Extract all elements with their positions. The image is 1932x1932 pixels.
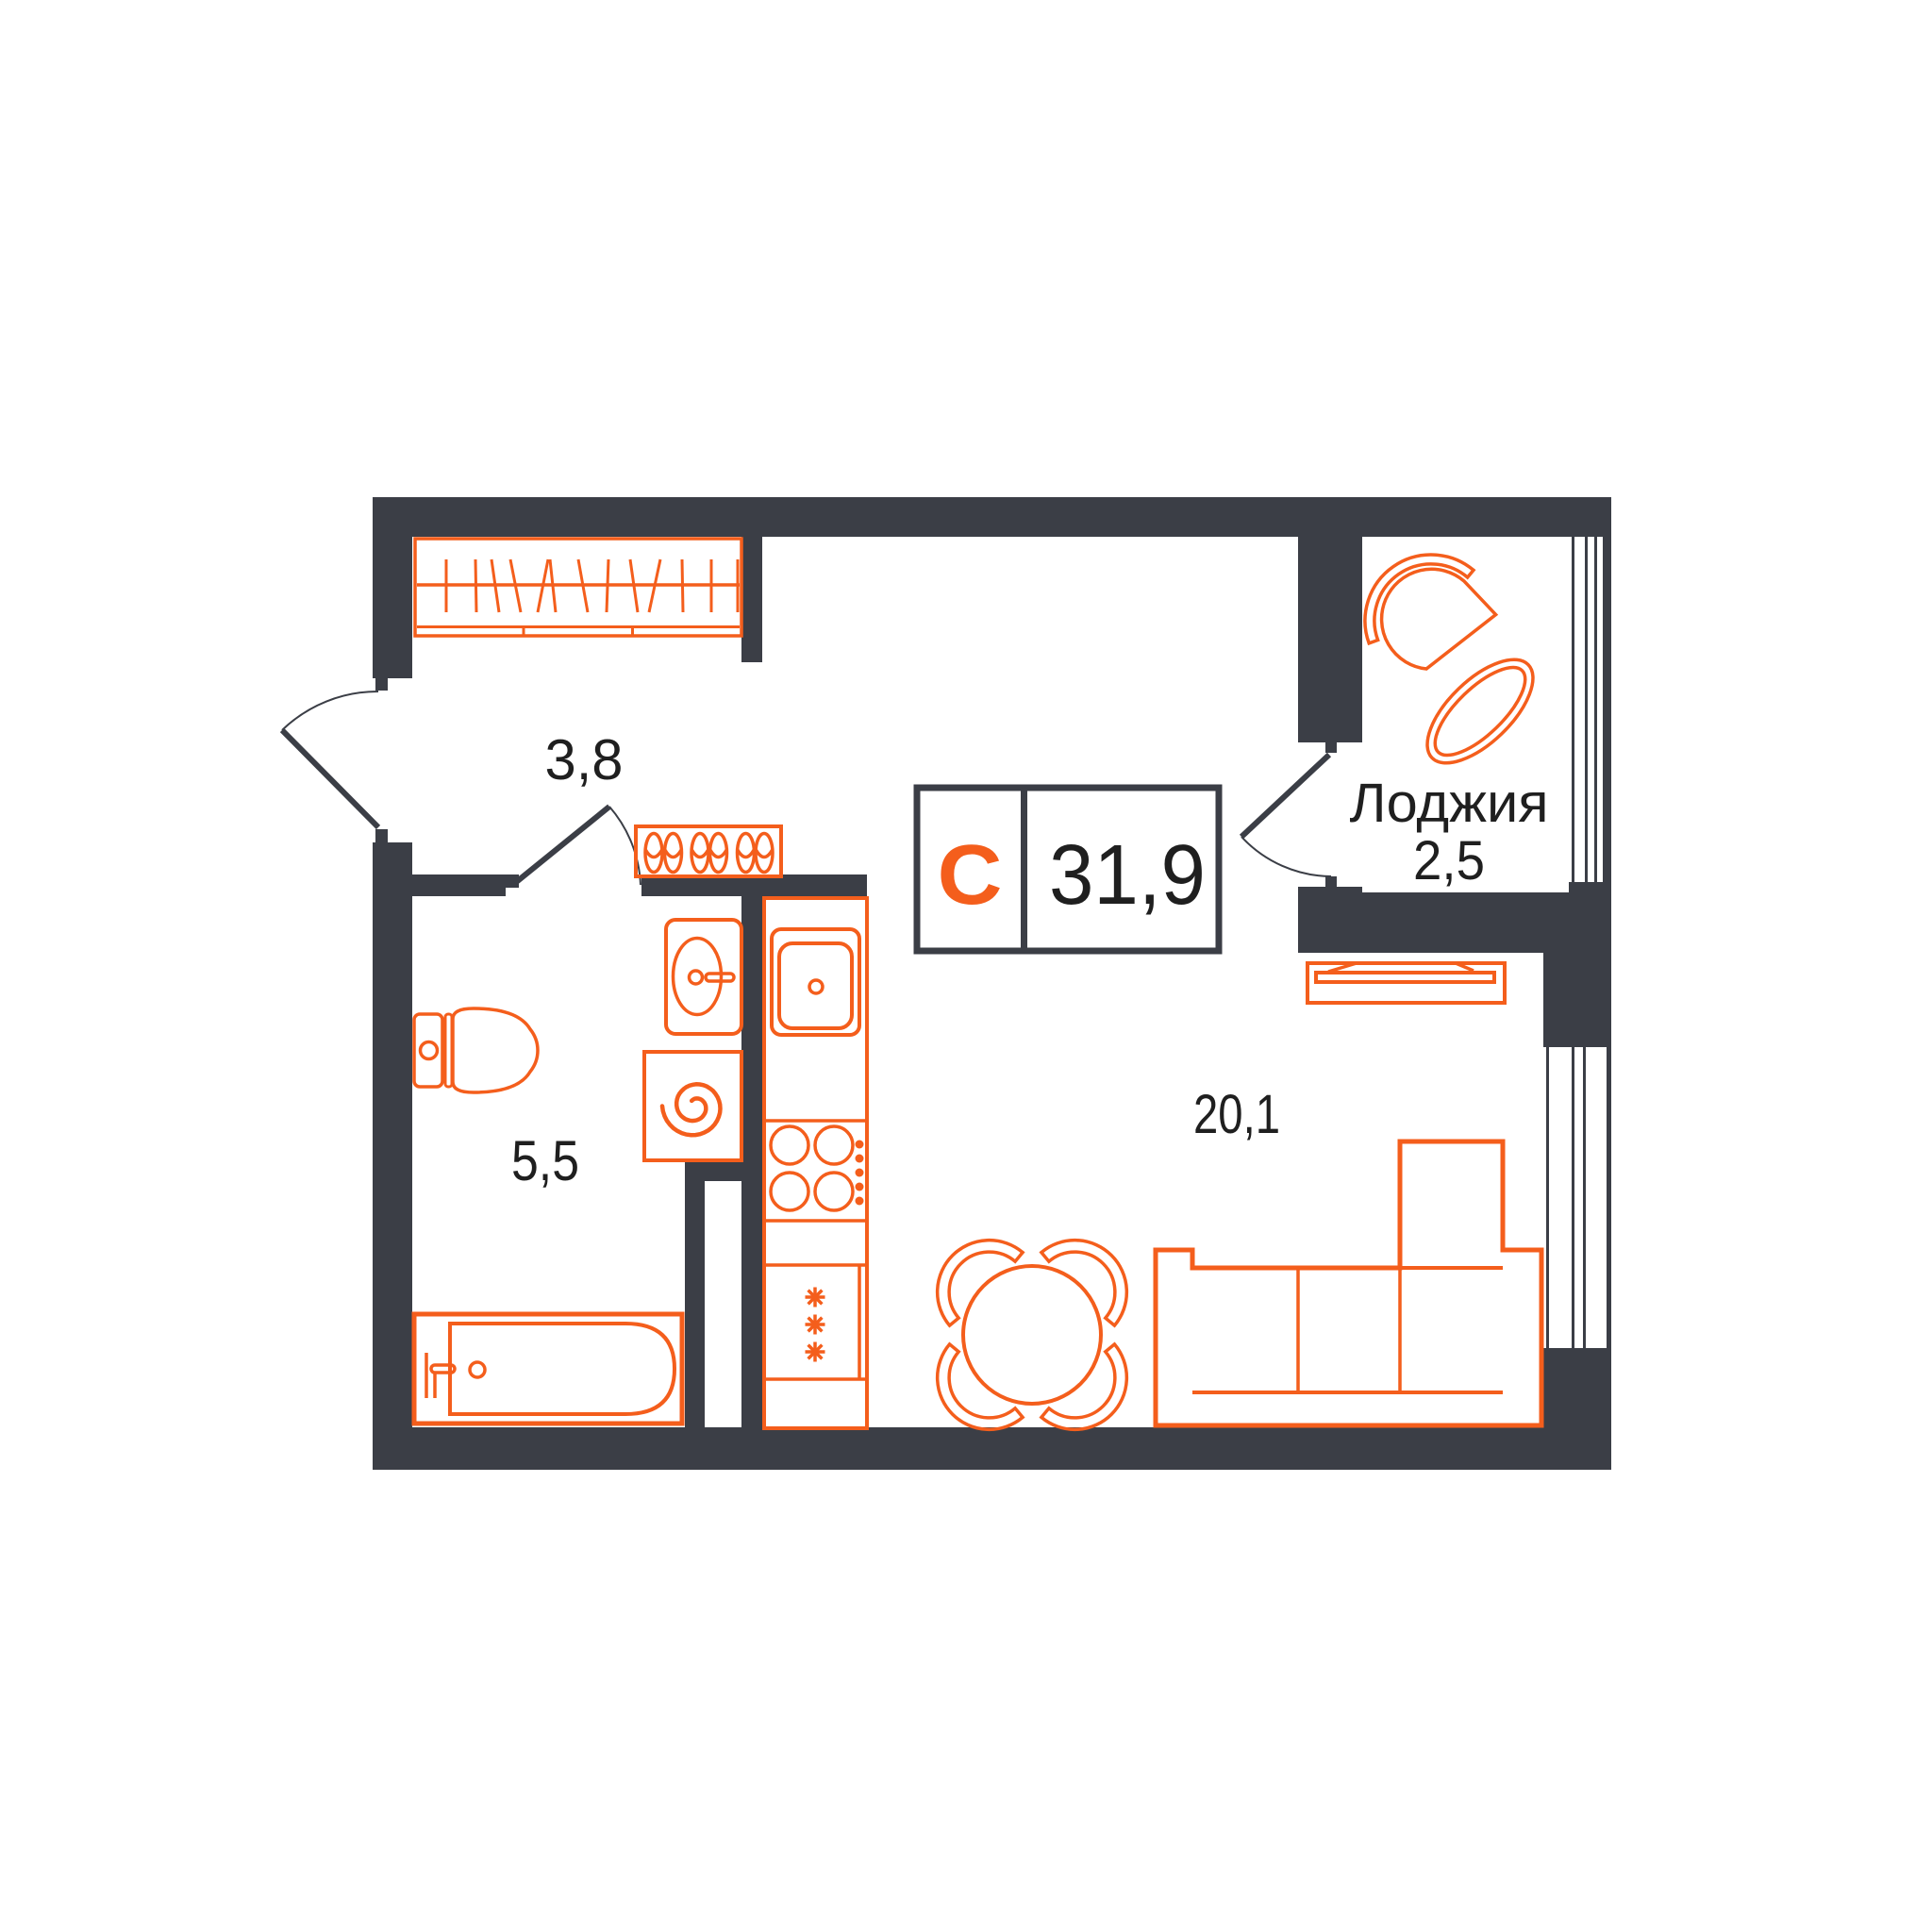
svg-text:3,8: 3,8 [545,728,624,791]
svg-text:5,5: 5,5 [511,1129,579,1192]
svg-text:2,5: 2,5 [1413,830,1485,891]
svg-text:31,9: 31,9 [1049,828,1206,923]
svg-text:С: С [938,828,1003,923]
svg-text:Лоджия: Лоджия [1350,773,1549,834]
svg-text:20,1: 20,1 [1193,1084,1280,1145]
